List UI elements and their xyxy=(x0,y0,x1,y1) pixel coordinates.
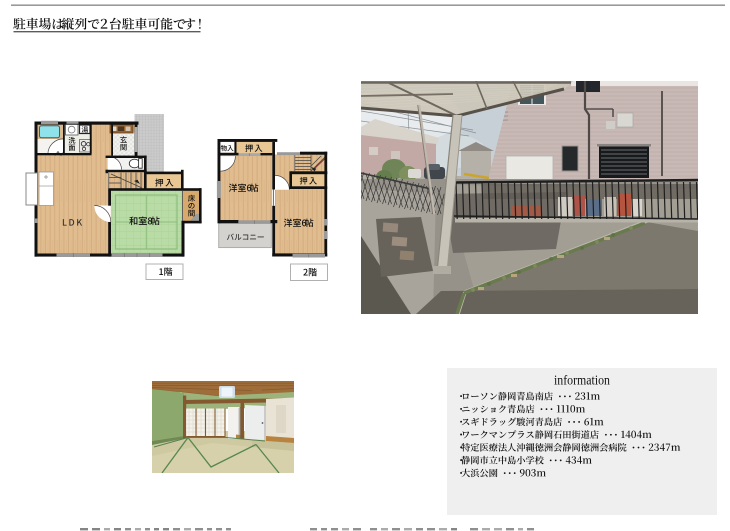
svg-text:information: information xyxy=(554,373,610,388)
